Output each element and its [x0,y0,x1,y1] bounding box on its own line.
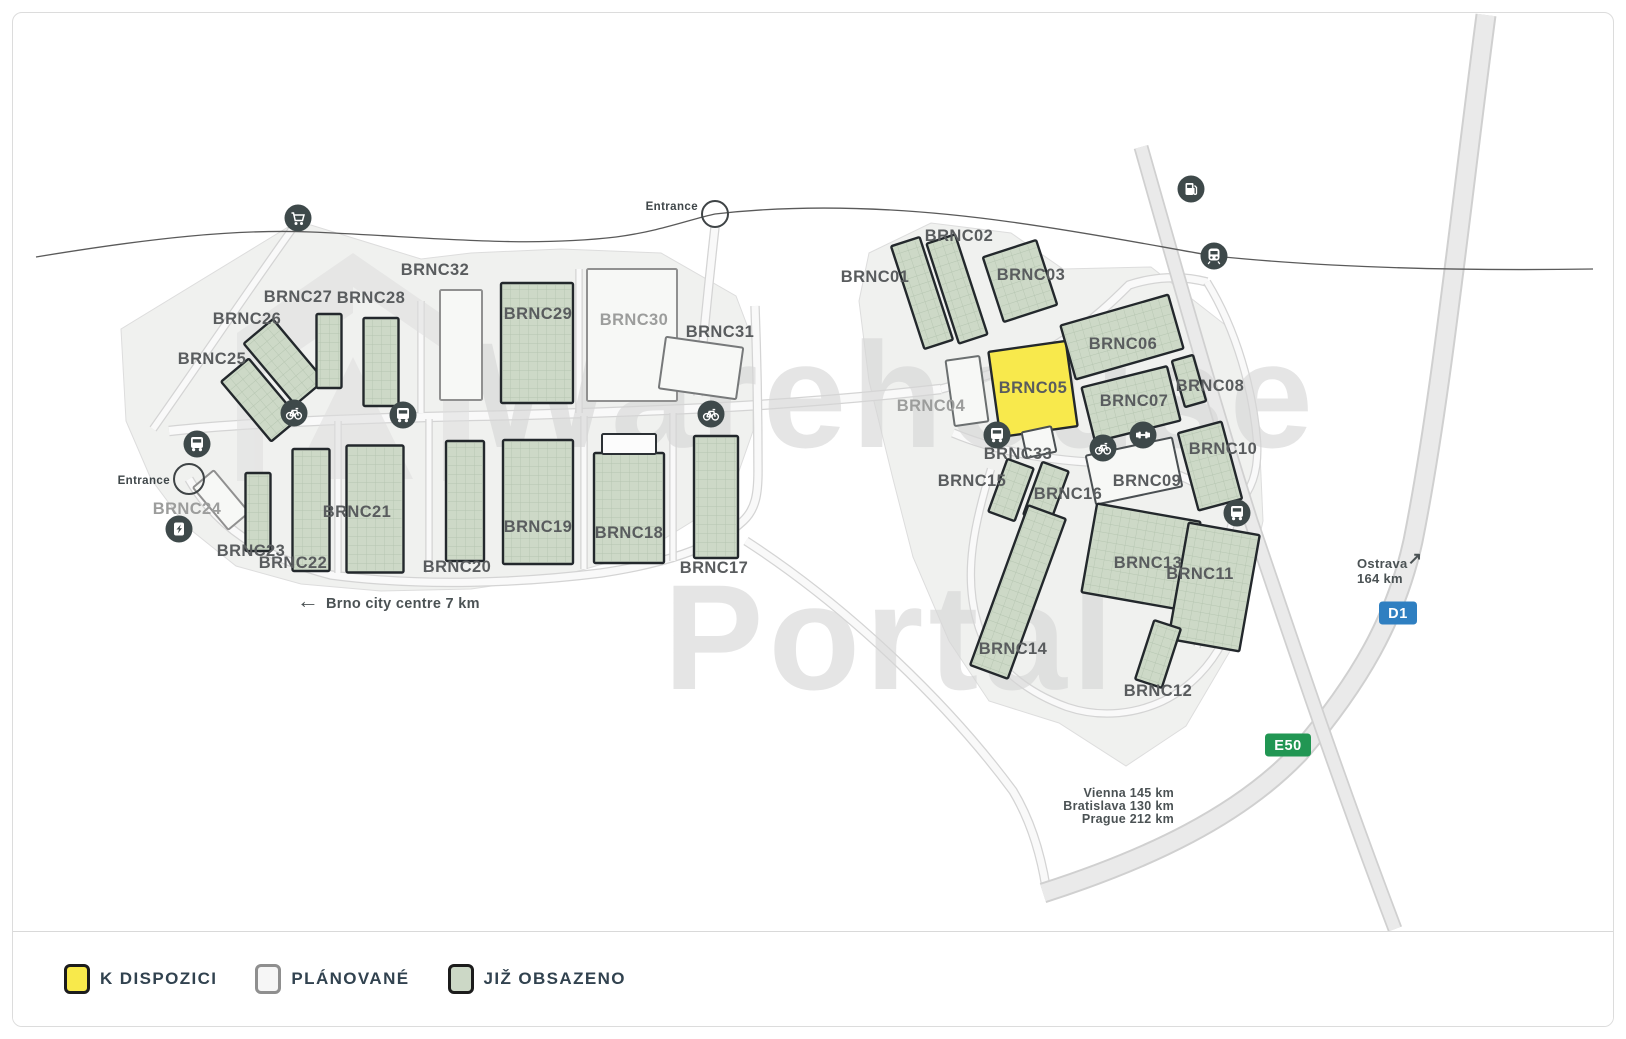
building-label-BRNC26: BRNC26 [213,310,281,328]
building-label-BRNC19: BRNC19 [504,518,572,536]
building-label-BRNC30: BRNC30 [600,311,668,329]
building-label-BRNC17: BRNC17 [680,559,748,577]
building-label-BRNC01: BRNC01 [841,268,909,286]
building-BRNC20[interactable] [446,441,484,561]
ev-charging-icon [166,516,193,543]
legend-label-planned: PLÁNOVANÉ [291,969,409,989]
gym-icon [1130,422,1157,449]
road-badge-D1: D1 [1379,602,1417,625]
building-label-BRNC02: BRNC02 [925,227,993,245]
building-BRNC19[interactable] [503,440,573,564]
building-label-BRNC21: BRNC21 [323,503,391,521]
bike-path-icon [281,400,308,427]
building-BRNC27[interactable] [317,314,342,388]
building-BRNC17[interactable] [694,436,738,558]
note-line: Brno city centre 7 km [326,596,480,612]
building-label-BRNC20: BRNC20 [423,558,491,576]
building-label-BRNC28: BRNC28 [337,289,405,307]
note-line: 164 km [1357,571,1403,586]
train-station-icon [1201,243,1228,270]
building-BRNC29[interactable] [501,283,573,403]
bike-path-icon [1090,435,1117,462]
bus-stop-icon [1224,500,1251,527]
entrance-label-2: Entrance [118,475,170,487]
building-BRNC28[interactable] [364,318,399,406]
legend-label-occupied: JIŽ OBSAZENO [484,969,626,989]
bus-stop-icon [390,402,417,429]
building-label-BRNC11: BRNC11 [1166,565,1234,583]
building-BRNC18[interactable] [594,453,664,563]
building-label-BRNC32: BRNC32 [401,261,469,279]
legend-item-occupied: JIŽ OBSAZENO [448,964,626,994]
building-BRNC23[interactable] [246,473,271,551]
note-brno-city-centre: ←Brno city centre 7 km [297,588,480,613]
building-label-BRNC08: BRNC08 [1176,377,1244,395]
building-structure [602,434,656,454]
building-label-BRNC15: BRNC15 [938,472,1006,490]
bike-path-icon [698,401,725,428]
building-label-BRNC10: BRNC10 [1189,440,1257,458]
road-badge-label: D1 [1388,606,1408,622]
building-label-BRNC05: BRNC05 [999,379,1067,397]
building-BRNC31[interactable] [659,337,743,399]
watermark-line2: Portal [663,553,1118,721]
building-label-BRNC03: BRNC03 [997,266,1065,284]
building-label-BRNC12: BRNC12 [1124,682,1192,700]
building-label-BRNC18: BRNC18 [595,524,663,542]
note-arrow-ostrava: ↗ [1408,549,1423,568]
building-label-BRNC16: BRNC16 [1034,485,1102,503]
legend-swatch-occupied [448,964,474,994]
building-label-BRNC04: BRNC04 [897,397,966,415]
legend: K DISPOZICI PLÁNOVANÉ JIŽ OBSAZENO [13,931,1613,1026]
site-map: Warehouse Portal BRNC01BRNC02BRNC03BRNC0… [13,13,1613,931]
building-label-BRNC31: BRNC31 [686,323,754,341]
note-line: Prague 212 km [1082,812,1174,826]
note-line: Bratislava 130 km [1063,799,1174,813]
building-label-BRNC06: BRNC06 [1089,335,1157,353]
note-line: Ostrava [1357,556,1408,571]
building-BRNC32[interactable] [440,290,482,400]
building-label-BRNC27: BRNC27 [264,288,332,306]
fuel-station-icon [1178,176,1205,203]
entrance-label-1: Entrance [646,201,698,213]
note-southern-cities: Vienna 145 kmBratislava 130 kmPrague 212… [1063,786,1174,826]
legend-swatch-planned [255,964,281,994]
building-label-BRNC09: BRNC09 [1113,472,1181,490]
legend-item-planned: PLÁNOVANÉ [255,964,409,994]
building-label-BRNC24: BRNC24 [153,500,222,518]
note-line: Vienna 145 km [1083,786,1174,800]
road-badge-label: E50 [1274,738,1302,754]
building-label-BRNC07: BRNC07 [1100,392,1168,410]
building-label-BRNC22: BRNC22 [259,554,327,572]
site-plan-card: Warehouse Portal BRNC01BRNC02BRNC03BRNC0… [12,12,1614,1027]
building-label-BRNC25: BRNC25 [178,350,246,368]
bus-stop-icon [184,431,211,458]
road-badge-E50: E50 [1265,734,1311,757]
legend-swatch-available [64,964,90,994]
building-label-BRNC29: BRNC29 [504,305,572,323]
note-arrow-brno-city-centre: ← [297,588,319,613]
legend-item-available: K DISPOZICI [64,964,217,994]
bus-stop-icon [984,422,1011,449]
legend-label-available: K DISPOZICI [100,969,217,989]
building-label-BRNC14: BRNC14 [979,640,1048,658]
shopping-cart-icon [285,205,312,232]
